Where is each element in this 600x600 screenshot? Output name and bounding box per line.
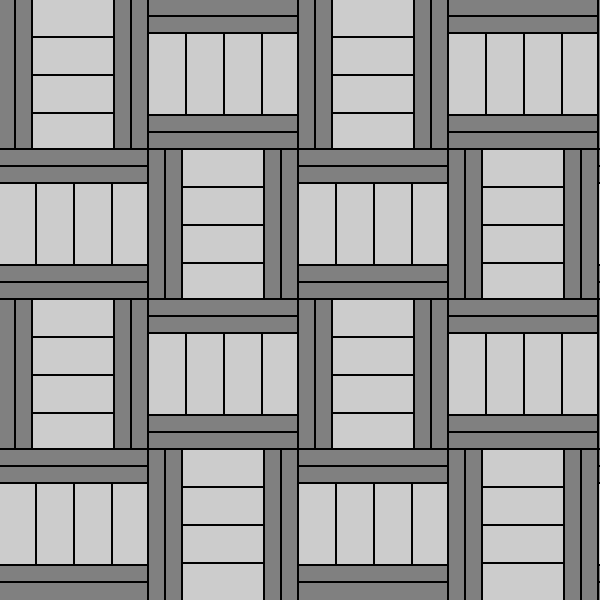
weave-tile-v (147, 448, 297, 600)
rail-bar (16, 300, 31, 448)
panel-strip (33, 38, 113, 74)
rail-bar (0, 300, 14, 448)
weave-tile-v (447, 148, 597, 298)
rail-bar (115, 300, 130, 448)
weave-tile-h (447, 0, 597, 148)
panel-strip (333, 376, 413, 412)
panel-strip (333, 76, 413, 112)
panel-strip (299, 484, 335, 564)
rail-bar (449, 17, 597, 32)
pattern-layer (0, 0, 600, 600)
panel-strip (337, 184, 373, 264)
panel-strip (225, 334, 261, 414)
rail-bar (166, 150, 181, 298)
panel-strip (483, 188, 563, 224)
rail-bar (149, 133, 297, 148)
rail-bar (316, 0, 331, 148)
rail-bar (299, 566, 447, 581)
rail-bar (299, 450, 447, 465)
panel-strip (113, 184, 147, 264)
rail-bar (282, 450, 297, 600)
weave-tile-v (147, 148, 297, 298)
rail-bar (449, 433, 597, 448)
weave-tile-h (297, 448, 447, 600)
rail-bar (299, 266, 447, 281)
rail-bar (582, 450, 597, 600)
rail-bar (415, 300, 430, 448)
panel-strip (263, 334, 297, 414)
panel-strip (333, 300, 413, 336)
panel-strip (183, 150, 263, 186)
rail-bar (449, 317, 597, 332)
panel-strip (33, 300, 113, 336)
rail-bar (432, 0, 447, 148)
rail-bar (149, 0, 297, 15)
weave-tile-h (297, 148, 447, 298)
panel-strip (183, 264, 263, 298)
rail-bar (299, 300, 314, 448)
weave-tile-v (297, 0, 447, 148)
rail-bar (149, 150, 164, 298)
panel-strip (483, 264, 563, 298)
rail-bar (299, 283, 447, 298)
weave-tile-h (0, 148, 147, 298)
weave-tile-v (0, 298, 147, 448)
rail-bar (565, 450, 580, 600)
rail-bar (299, 167, 447, 182)
weave-tile-h (0, 448, 147, 600)
panel-strip (449, 334, 485, 414)
rail-bar (449, 450, 464, 600)
panel-strip (75, 484, 111, 564)
panel-strip (483, 450, 563, 486)
panel-strip (33, 414, 113, 448)
panel-strip (375, 484, 411, 564)
weave-tile-v (297, 298, 447, 448)
panel-strip (0, 484, 35, 564)
rail-bar (115, 0, 130, 148)
panel-strip (113, 484, 147, 564)
rail-bar (0, 283, 147, 298)
panel-strip (183, 564, 263, 600)
weave-tile-v (0, 0, 147, 148)
rail-bar (449, 133, 597, 148)
rail-bar (166, 450, 181, 600)
rail-bar (0, 583, 147, 600)
panel-strip (333, 414, 413, 448)
panel-strip (187, 334, 223, 414)
rail-bar (449, 0, 597, 15)
rail-bar (265, 450, 280, 600)
panel-strip (183, 488, 263, 524)
panel-strip (183, 226, 263, 262)
rail-bar (0, 467, 147, 482)
panel-strip (333, 38, 413, 74)
panel-strip (333, 114, 413, 148)
panel-strip (525, 34, 561, 114)
rail-bar (0, 0, 14, 148)
panel-strip (375, 184, 411, 264)
panel-strip (33, 0, 113, 36)
rail-bar (149, 300, 297, 315)
weave-tile-h (447, 298, 597, 448)
panel-strip (37, 484, 73, 564)
weave-tile-h (147, 298, 297, 448)
rail-bar (466, 150, 481, 298)
rail-bar (449, 416, 597, 431)
rail-bar (149, 17, 297, 32)
rail-bar (316, 300, 331, 448)
rail-bar (282, 150, 297, 298)
panel-strip (483, 526, 563, 562)
rail-bar (0, 150, 147, 165)
rail-bar (149, 416, 297, 431)
panel-strip (149, 334, 185, 414)
panel-strip (0, 184, 35, 264)
rail-bar (0, 566, 147, 581)
panel-strip (37, 184, 73, 264)
panel-strip (487, 334, 523, 414)
panel-strip (299, 184, 335, 264)
rail-bar (582, 150, 597, 298)
rail-bar (299, 467, 447, 482)
panel-strip (33, 114, 113, 148)
panel-strip (33, 338, 113, 374)
rail-bar (449, 300, 597, 315)
rail-bar (449, 116, 597, 131)
panel-strip (483, 564, 563, 600)
panel-strip (487, 34, 523, 114)
panel-strip (183, 188, 263, 224)
rail-bar (565, 150, 580, 298)
rail-bar (415, 0, 430, 148)
panel-strip (33, 76, 113, 112)
rail-bar (466, 450, 481, 600)
panel-strip (449, 34, 485, 114)
rail-bar (299, 150, 447, 165)
rail-bar (149, 116, 297, 131)
panel-strip (183, 450, 263, 486)
panel-strip (337, 484, 373, 564)
panel-strip (483, 226, 563, 262)
panel-strip (413, 184, 447, 264)
panel-strip (225, 34, 261, 114)
basketweave-pattern (0, 0, 600, 600)
panel-strip (333, 338, 413, 374)
panel-strip (413, 484, 447, 564)
panel-strip (263, 34, 297, 114)
panel-strip (333, 0, 413, 36)
panel-strip (75, 184, 111, 264)
rail-bar (149, 433, 297, 448)
rail-bar (0, 266, 147, 281)
rail-bar (449, 150, 464, 298)
rail-bar (132, 0, 147, 148)
rail-bar (16, 0, 31, 148)
rail-bar (299, 0, 314, 148)
panel-strip (563, 334, 597, 414)
rail-bar (149, 450, 164, 600)
weave-tile-v (447, 448, 597, 600)
rail-bar (0, 450, 147, 465)
panel-strip (33, 376, 113, 412)
rail-bar (149, 317, 297, 332)
rail-bar (132, 300, 147, 448)
panel-strip (183, 526, 263, 562)
panel-strip (483, 488, 563, 524)
panel-strip (563, 34, 597, 114)
rail-bar (0, 167, 147, 182)
rail-bar (265, 150, 280, 298)
panel-strip (483, 150, 563, 186)
panel-strip (149, 34, 185, 114)
weave-tile-h (147, 0, 297, 148)
rail-bar (299, 583, 447, 600)
panel-strip (187, 34, 223, 114)
panel-strip (525, 334, 561, 414)
rail-bar (432, 300, 447, 448)
